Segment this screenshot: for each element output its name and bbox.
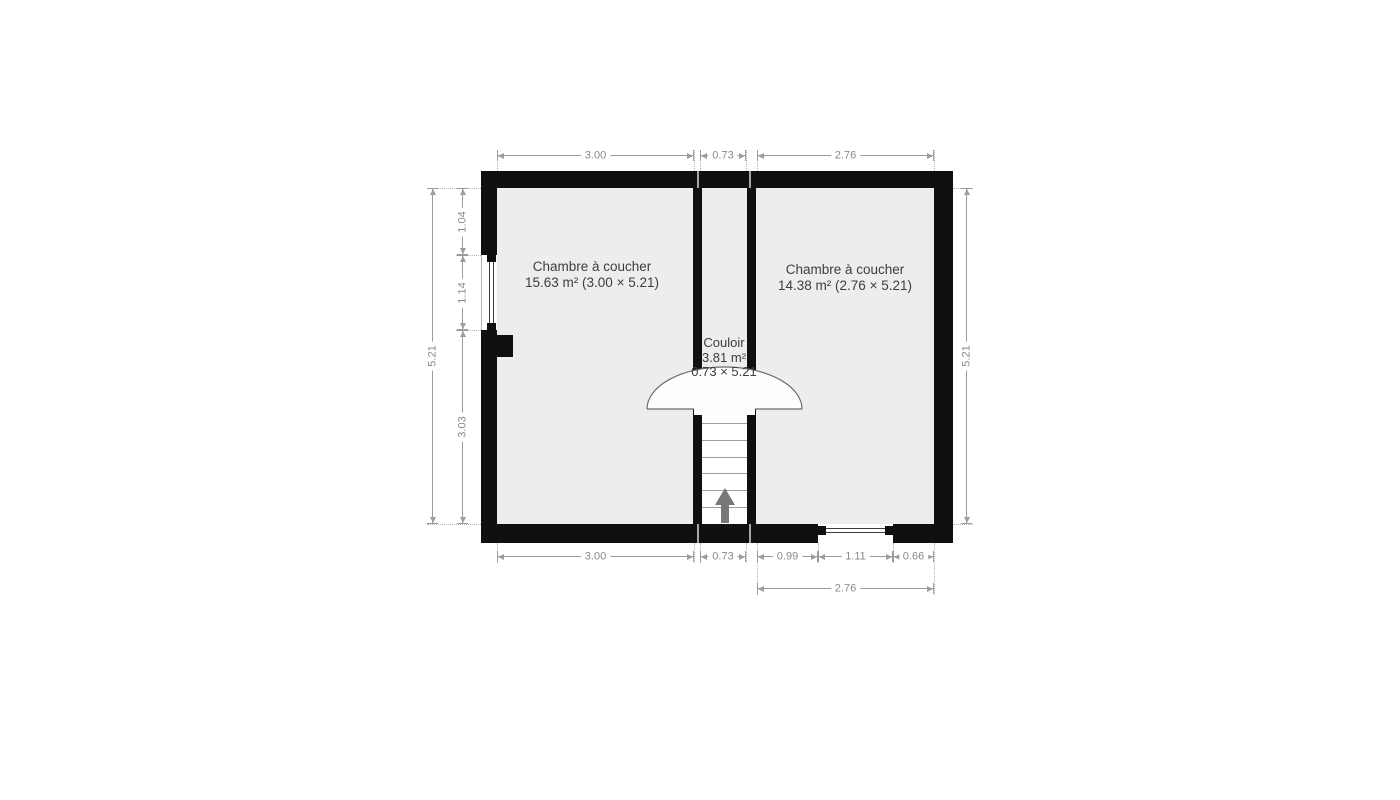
dim-value: 5.21: [960, 341, 973, 370]
extension-line: [953, 524, 973, 525]
dim-bottom-wall-segment: 0.99: [757, 550, 818, 564]
room-name: Chambre à coucher: [778, 262, 912, 278]
dim-value: 1.04: [456, 207, 469, 236]
window-glazing: [489, 255, 490, 330]
window-glazing: [818, 532, 893, 533]
dim-left-window-height: 1.14: [456, 255, 470, 330]
dim-bottom-corridor-width: 0.73: [700, 550, 746, 564]
extension-line: [746, 150, 747, 171]
extension-line: [934, 150, 935, 171]
floorplan-canvas: Chambre à coucher 15.63 m² (3.00 × 5.21)…: [0, 0, 1400, 800]
room-label-corridor: Couloir 3.81 m² 0.73 × 5.21: [691, 336, 756, 380]
dim-value: 0.99: [773, 550, 802, 563]
room-size: 0.73 × 5.21: [691, 365, 756, 380]
extension-line: [694, 543, 695, 563]
wall-seam: [749, 171, 751, 188]
dim-value: 2.76: [831, 149, 860, 162]
stairs-up-arrow-icon: [710, 485, 740, 525]
wall-seam: [749, 524, 751, 543]
dim-bottom-window-width: 1.11: [818, 550, 893, 564]
dim-value: 0.73: [708, 550, 737, 563]
dim-left-overall-height: 5.21: [426, 188, 440, 524]
stair-step: [702, 473, 747, 474]
window-glazing: [493, 255, 494, 330]
dim-top-bedroom2-width: 2.76: [757, 149, 934, 163]
dim-top-corridor-width: 0.73: [700, 149, 746, 163]
window-cap: [885, 526, 893, 535]
dim-right-overall-height: 5.21: [960, 188, 974, 524]
dim-value: 0.66: [899, 550, 928, 563]
dim-value: 2.76: [831, 582, 860, 595]
dim-value: 3.00: [581, 149, 610, 162]
extension-line: [427, 524, 481, 525]
extension-line: [694, 150, 695, 171]
room-area: 3.81 m²: [691, 351, 756, 366]
room-details: 15.63 m² (3.00 × 5.21): [525, 275, 659, 291]
dim-left-wall-segment: 1.04: [456, 188, 470, 255]
window-cap: [487, 255, 496, 262]
extension-line: [746, 543, 747, 563]
room-label-bedroom-2: Chambre à coucher 14.38 m² (2.76 × 5.21): [778, 262, 912, 293]
extension-line: [934, 543, 935, 595]
stair-step: [702, 440, 747, 441]
dim-value: 0.73: [708, 149, 737, 162]
room-label-bedroom-1: Chambre à coucher 15.63 m² (3.00 × 5.21): [525, 259, 659, 290]
room-details: 14.38 m² (2.76 × 5.21): [778, 278, 912, 294]
room-name: Couloir: [691, 336, 756, 351]
dim-value: 3.00: [581, 550, 610, 563]
wall-seam: [697, 171, 699, 188]
wall-seam: [697, 524, 699, 543]
window-outer-face: [481, 255, 482, 330]
bedroom-1-floor: [497, 188, 693, 524]
wall-column: [497, 335, 513, 357]
dim-top-bedroom1-width: 3.00: [497, 149, 694, 163]
stair-step: [702, 423, 747, 424]
window-symbol: [818, 524, 893, 543]
stair-step: [702, 457, 747, 458]
window-symbol: [481, 255, 497, 330]
dim-value: 1.11: [841, 550, 870, 563]
room-name: Chambre à coucher: [525, 259, 659, 275]
window-cap: [818, 526, 826, 535]
dim-value: 3.03: [456, 412, 469, 441]
dim-bottom-wall-segment: 0.66: [893, 550, 934, 564]
window-glazing: [818, 528, 893, 529]
dim-value: 5.21: [426, 341, 439, 370]
window-cap: [487, 323, 496, 330]
dim-bottom-bedroom2-overall: 2.76: [757, 582, 934, 596]
dim-bottom-bedroom1-width: 3.00: [497, 550, 694, 564]
dim-value: 1.14: [456, 278, 469, 307]
dim-left-wall-segment: 3.03: [456, 330, 470, 524]
bedroom-2-floor: [756, 188, 934, 524]
